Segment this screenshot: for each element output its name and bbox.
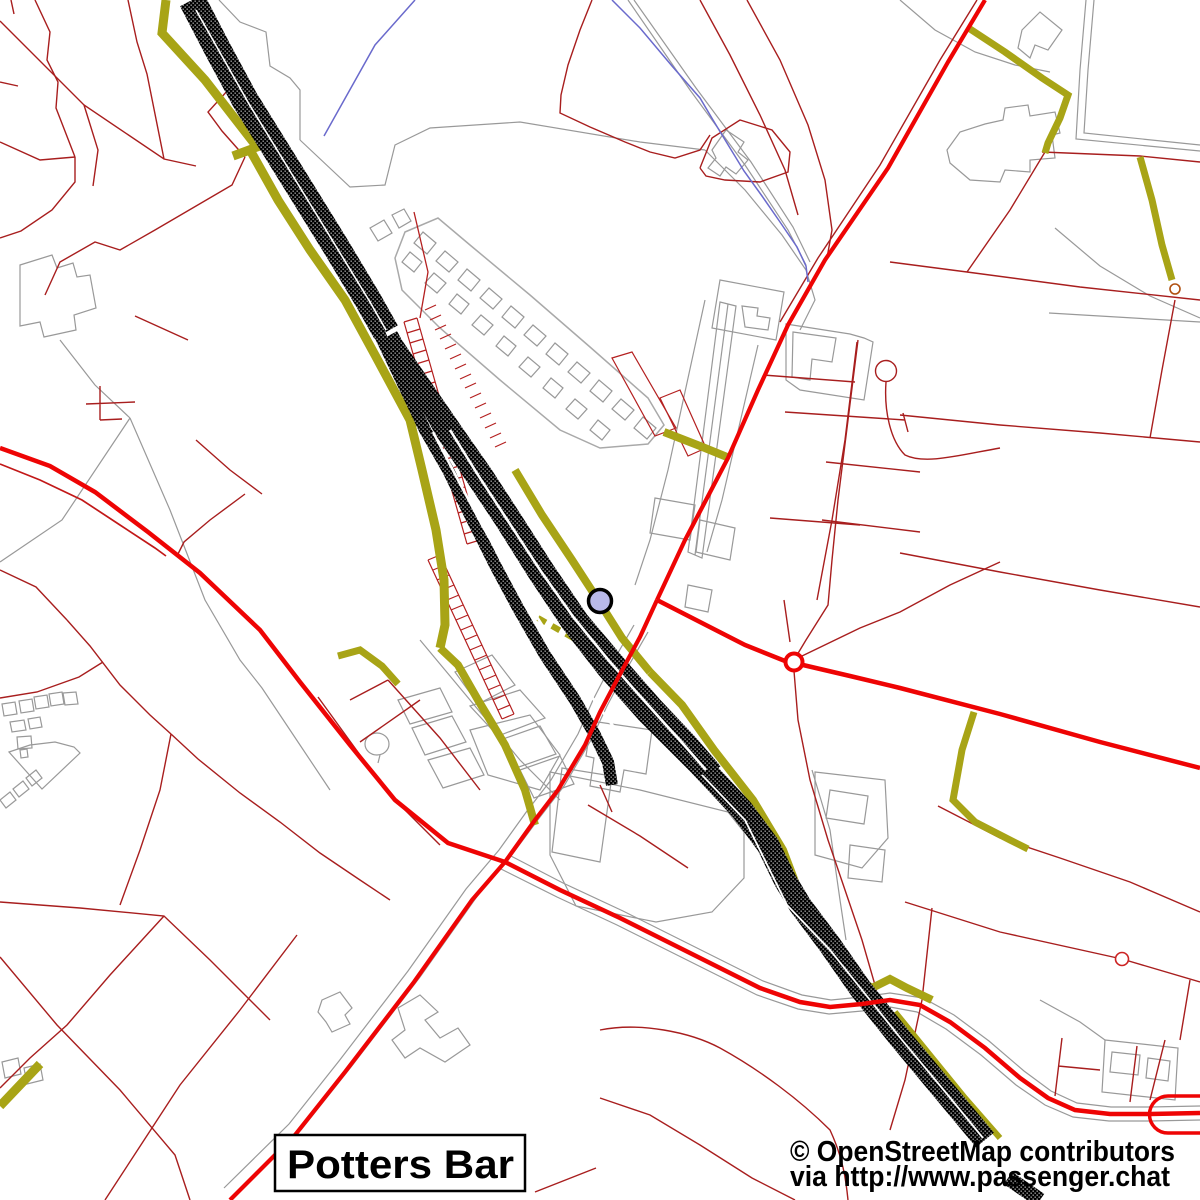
svg-text:via http://www.passenger.chat: via http://www.passenger.chat — [790, 1161, 1170, 1193]
svg-text:Potters Bar: Potters Bar — [287, 1143, 514, 1187]
